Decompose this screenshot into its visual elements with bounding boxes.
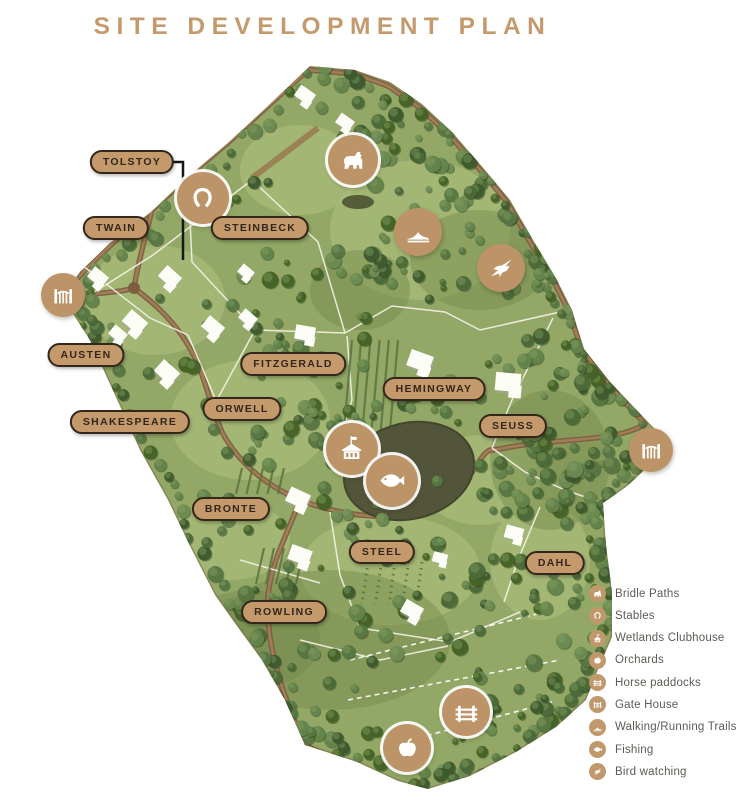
- fish-icon: [589, 741, 606, 758]
- fishing-marker: [366, 455, 418, 507]
- shoe-icon: [404, 218, 433, 247]
- legend-label: Gate House: [615, 699, 678, 711]
- map-label-twain: TWAIN: [83, 216, 149, 240]
- legend-label: Wetlands Clubhouse: [615, 632, 725, 644]
- map-label-steinbeck: STEINBECK: [211, 216, 309, 240]
- gate-house-west-marker: [41, 273, 85, 317]
- horse-icon: [589, 585, 606, 602]
- gate-icon: [50, 282, 76, 308]
- legend-item-walking-running-trails: Walking/Running Trails: [589, 719, 737, 736]
- map-label-hemingway: HEMINGWAY: [383, 377, 486, 401]
- bridle-paths-marker: [328, 135, 378, 185]
- legend-label: Bird watching: [615, 766, 687, 778]
- walking-trails-marker: [394, 208, 442, 256]
- horseshoe-icon: [589, 607, 606, 624]
- clubhouse-icon: [336, 433, 367, 464]
- bird-icon: [589, 763, 606, 780]
- fish-icon: [376, 465, 407, 496]
- map-label-bronte: BRONTE: [192, 497, 270, 521]
- apple-icon: [589, 652, 606, 669]
- apple-icon: [393, 734, 422, 763]
- legend-item-gate-house: Gate House: [589, 696, 737, 713]
- gate-icon: [638, 437, 664, 463]
- map-label-dahl: DAHL: [525, 551, 585, 575]
- legend-item-bridle-paths: Bridle Paths: [589, 585, 737, 602]
- legend-label: Stables: [615, 610, 655, 622]
- horseshoe-icon: [187, 182, 218, 213]
- legend-label: Orchards: [615, 654, 664, 666]
- legend-label: Horse paddocks: [615, 677, 701, 689]
- shoe-icon: [589, 719, 606, 736]
- orchards-marker: [383, 724, 431, 772]
- fence-icon: [452, 698, 481, 727]
- legend-item-wetlands-clubhouse: Wetlands Clubhouse: [589, 630, 737, 647]
- legend-item-horse-paddocks: Horse paddocks: [589, 674, 737, 691]
- legend-item-bird-watching: Bird watching: [589, 763, 737, 780]
- map-label-shakespeare: SHAKESPEARE: [70, 410, 190, 434]
- map-label-austen: AUSTEN: [48, 343, 125, 367]
- fence-icon: [589, 674, 606, 691]
- legend-label: Fishing: [615, 744, 653, 756]
- legend-label: Walking/Running Trails: [615, 721, 737, 733]
- map-label-fitzgerald: FITZGERALD: [240, 352, 346, 376]
- legend-item-stables: Stables: [589, 607, 737, 624]
- gate-icon: [589, 696, 606, 713]
- map-label-tolstoy: TOLSTOY: [90, 150, 174, 174]
- clubhouse-icon: [589, 630, 606, 647]
- map-label-rowling: ROWLING: [241, 600, 327, 624]
- horse-paddocks-marker: [442, 688, 490, 736]
- bird-icon: [487, 254, 516, 283]
- legend-label: Bridle Paths: [615, 588, 679, 600]
- legend-item-fishing: Fishing: [589, 741, 737, 758]
- horse-icon: [338, 145, 368, 175]
- map-label-seuss: SEUSS: [479, 414, 547, 438]
- map-label-orwell: ORWELL: [202, 397, 281, 421]
- site-development-plan-page: SITE DEVELOPMENT PLAN: [0, 0, 751, 793]
- bird-watching-marker: [477, 244, 525, 292]
- gate-house-east-marker: [629, 428, 673, 472]
- legend-item-orchards: Orchards: [589, 652, 737, 669]
- map-label-steel: STEEL: [349, 540, 415, 564]
- legend: Bridle PathsStablesWetlands ClubhouseOrc…: [589, 585, 737, 780]
